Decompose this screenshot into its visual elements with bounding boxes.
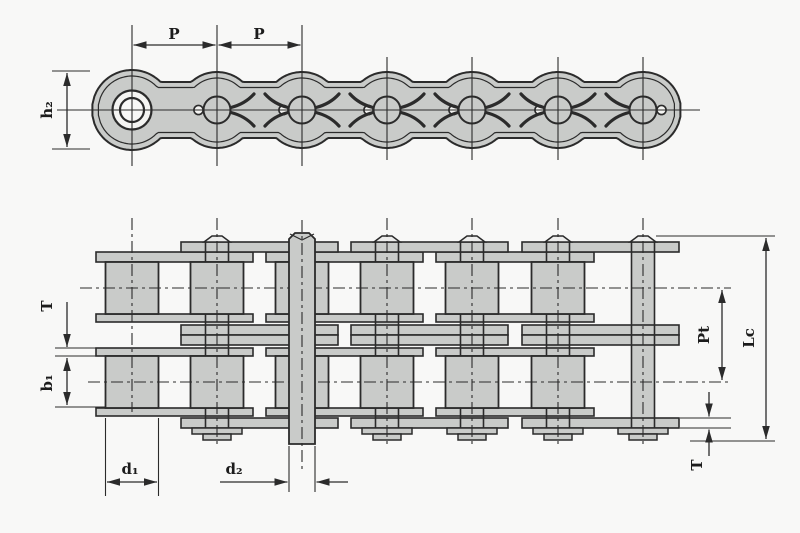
pitch-label-right: P — [253, 25, 264, 43]
inner-link-plate — [96, 348, 253, 356]
plate-thickness-left-label: T — [38, 300, 56, 312]
outer-link-plate — [351, 325, 508, 335]
inner-link-plate — [96, 252, 253, 262]
outer-link-plate — [522, 335, 679, 345]
inner-link-plate — [96, 314, 253, 322]
chain-drawing: P P h₂ T b₁ d₁ d₂ Pt Lc T — [0, 0, 800, 533]
bottom-view-center-pin — [289, 220, 315, 470]
outer-link-plate — [351, 418, 508, 428]
bottom-view-rollers — [106, 262, 585, 408]
pitch-label-left: P — [168, 25, 179, 43]
pin-length-label: Lc — [740, 328, 758, 348]
plate-thickness-right-label: T — [688, 459, 706, 471]
outer-link-plate — [351, 335, 508, 345]
inner-link-plate — [96, 408, 253, 416]
pin-diameter-label: d₂ — [225, 460, 242, 478]
outer-link-plate — [351, 242, 508, 252]
outer-link-plate — [522, 418, 679, 428]
roller-diameter-label: d₁ — [121, 460, 138, 478]
outer-link-plate — [522, 242, 679, 252]
outer-link-plate — [522, 325, 679, 335]
plate-height-label: h₂ — [38, 101, 56, 118]
drawing-canvas: P P h₂ T b₁ d₁ d₂ Pt Lc T — [0, 0, 800, 533]
transverse-pitch-label: Pt — [695, 326, 713, 344]
inner-width-label: b₁ — [38, 374, 56, 391]
